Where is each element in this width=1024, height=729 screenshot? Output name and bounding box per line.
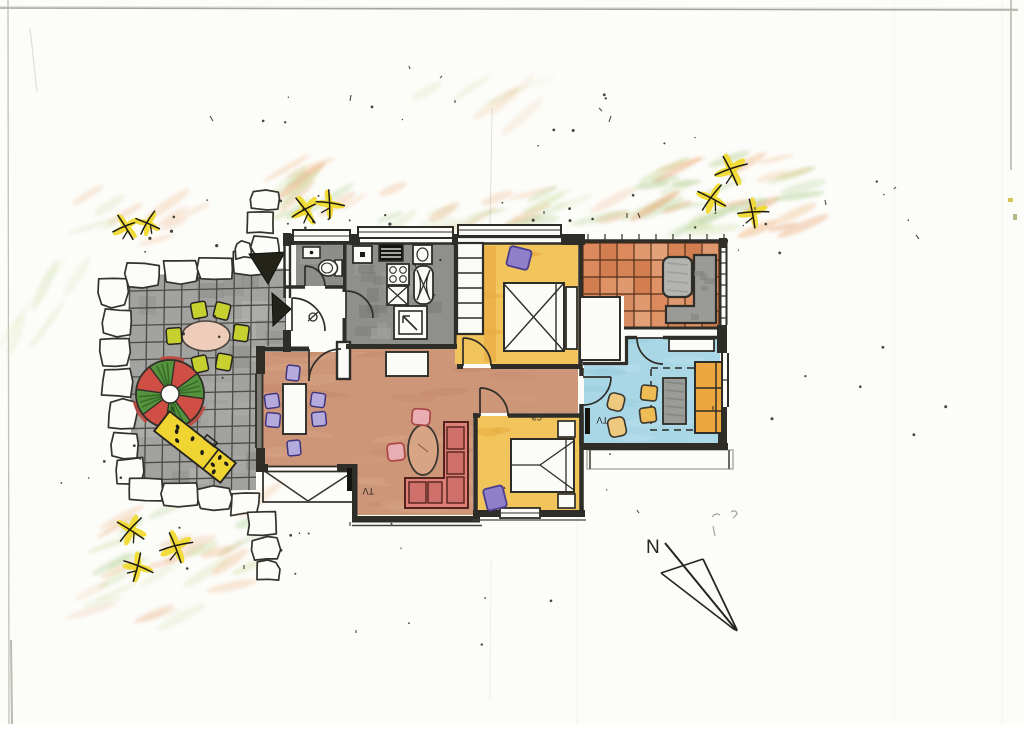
- svg-text:N: N: [646, 537, 660, 558]
- svg-text:TV: TV: [362, 486, 374, 496]
- svg-text:ca: ca: [531, 412, 542, 423]
- svg-text:TV: TV: [596, 415, 608, 425]
